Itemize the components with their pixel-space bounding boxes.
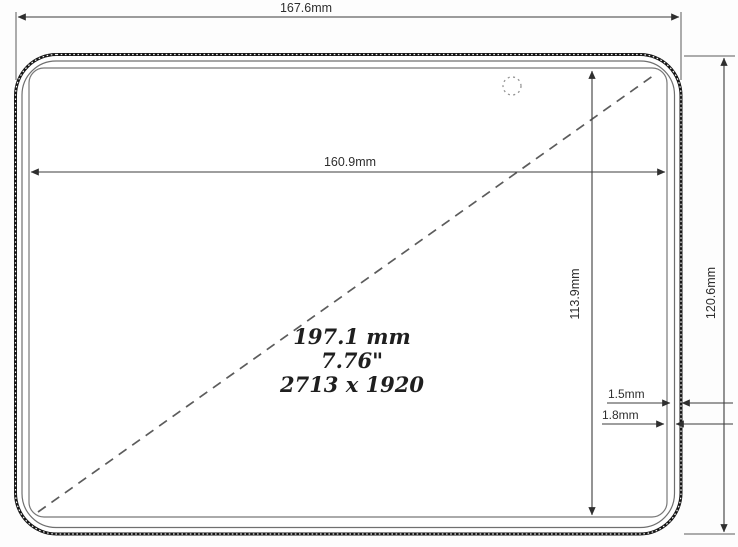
outer-width-label: 167.6mm [280, 1, 332, 15]
bezel-1-5-label: 1.5mm [608, 387, 645, 401]
diagonal-mm-label: 197.1 mm [293, 324, 411, 349]
display-width-label: 160.9mm [324, 155, 376, 169]
outer-height-label: 120.6mm [704, 267, 718, 319]
bezel-1-8-label: 1.8mm [602, 408, 639, 422]
diagonal-inches-label: 7.76" [321, 348, 383, 373]
display-height-label: 113.9mm [568, 268, 582, 319]
technical-drawing-canvas: 167.6mm 160.9mm 120.6mm 113.9mm 1.5mm [0, 0, 738, 547]
resolution-label: 2713 x 1920 [279, 372, 424, 397]
device-dimension-diagram: 167.6mm 160.9mm 120.6mm 113.9mm 1.5mm [0, 0, 738, 547]
outer-height-dimension: 120.6mm [684, 56, 735, 534]
